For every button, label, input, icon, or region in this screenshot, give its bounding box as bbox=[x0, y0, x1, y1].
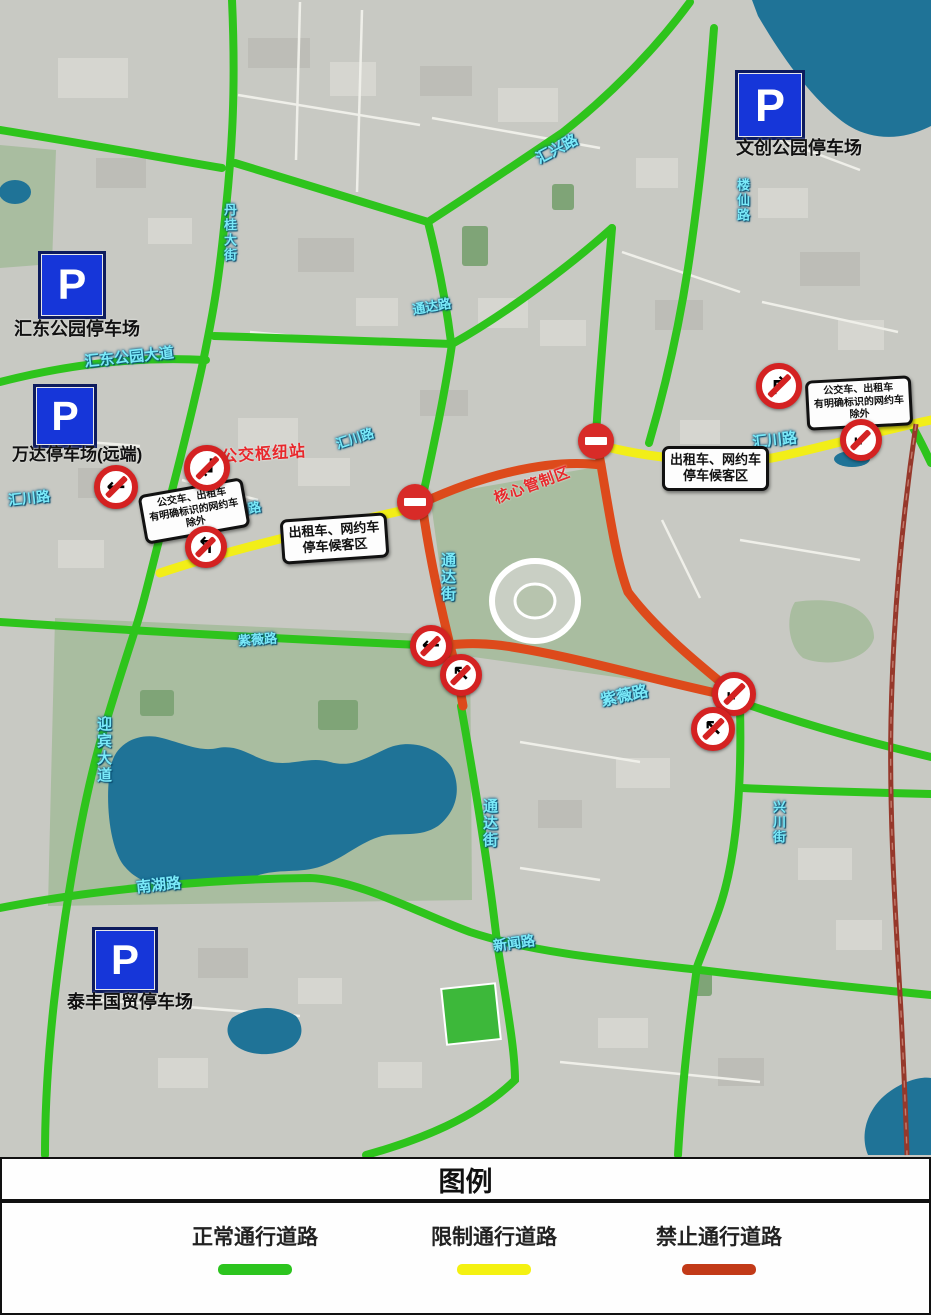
parking-lot-label: 泰丰国贸停车场 bbox=[67, 988, 193, 1014]
legend-color-bar bbox=[457, 1264, 531, 1275]
no-turn-sign: ↰ bbox=[185, 526, 227, 568]
parking-icon: P bbox=[33, 384, 97, 448]
parking-lot-label: 万达停车场(远端) bbox=[12, 440, 142, 465]
no-entry-bar bbox=[585, 437, 607, 444]
map-overlay: 汇兴路楼仙路丹桂大街汇东公园大道通达路汇川路汇川路汇川路汇川路通达街通达街紫薇路… bbox=[0, 0, 931, 1157]
road-name-label: 迎宾大道 bbox=[93, 716, 114, 784]
road-name-label: 新闻路 bbox=[492, 930, 536, 956]
legend-color-bar bbox=[682, 1264, 756, 1275]
parking-icon: P bbox=[38, 251, 106, 319]
parking-p-glyph: P bbox=[755, 83, 785, 128]
no-entry-bar bbox=[404, 498, 426, 505]
zone-label: 核心管制区 bbox=[491, 461, 573, 508]
notice-line: 出租车、网约车 bbox=[670, 452, 761, 468]
no-turn-sign: ↲ bbox=[184, 445, 230, 491]
road-name-label: 兴川街 bbox=[769, 800, 788, 845]
road-name-label: 汇兴路 bbox=[532, 129, 582, 169]
legend-panel: 图例 正常通行道路限制通行道路禁止通行道路 bbox=[0, 1157, 931, 1315]
parking-p-glyph: P bbox=[58, 264, 87, 307]
parking-p-glyph: P bbox=[111, 939, 139, 981]
legend-color-bar bbox=[218, 1264, 292, 1275]
no-entry-sign bbox=[397, 484, 433, 520]
parking-icon: P bbox=[92, 927, 158, 993]
road-name-label: 紫薇路 bbox=[598, 677, 650, 710]
road-name-label: 紫薇路 bbox=[237, 628, 277, 650]
no-turn-sign: ↖ bbox=[691, 707, 735, 751]
legend-item: 正常通行道路 bbox=[192, 1221, 318, 1275]
no-entry-sign bbox=[578, 423, 614, 459]
road-name-label: 汇川路 bbox=[333, 422, 376, 452]
parking-p-glyph: P bbox=[51, 396, 78, 437]
road-name-label: 汇川路 bbox=[7, 486, 51, 510]
no-left-turn-sign: ← bbox=[94, 465, 138, 509]
parking-lot-label: 文创公园停车场 bbox=[736, 134, 862, 160]
traffic-notice-box: 出租车、网约车停车候客区 bbox=[662, 446, 769, 491]
legend-item-label: 禁止通行道路 bbox=[656, 1221, 782, 1251]
no-turn-sign: ↖ bbox=[440, 654, 482, 696]
legend-title: 图例 bbox=[2, 1159, 929, 1203]
road-name-label: 丹桂大街 bbox=[220, 203, 239, 263]
zone-label: 公交枢纽站 bbox=[220, 437, 306, 467]
road-name-label: 通达街 bbox=[437, 552, 458, 603]
no-turn-sign: ↙ bbox=[840, 419, 882, 461]
legend-item: 禁止通行道路 bbox=[656, 1221, 782, 1275]
legend-item-label: 正常通行道路 bbox=[192, 1221, 318, 1251]
parking-lot-label: 汇东公园停车场 bbox=[14, 315, 140, 341]
traffic-notice-box: 出租车、网约车停车候客区 bbox=[280, 512, 390, 564]
road-name-label: 楼仙路 bbox=[733, 178, 752, 223]
legend-item: 限制通行道路 bbox=[431, 1221, 557, 1275]
road-name-label: 南湖路 bbox=[135, 872, 182, 898]
road-name-label: 汇东公园大道 bbox=[83, 341, 175, 371]
notice-line: 停车候客区 bbox=[670, 468, 761, 484]
parking-icon: P bbox=[735, 70, 805, 140]
road-name-label: 通达街 bbox=[479, 798, 500, 849]
legend-item-label: 限制通行道路 bbox=[431, 1221, 557, 1251]
road-name-label: 通达路 bbox=[411, 293, 453, 318]
traffic-control-map: 汇兴路楼仙路丹桂大街汇东公园大道通达路汇川路汇川路汇川路汇川路通达街通达街紫薇路… bbox=[0, 0, 931, 1315]
no-right-turn-sign: ↱ bbox=[756, 363, 802, 409]
